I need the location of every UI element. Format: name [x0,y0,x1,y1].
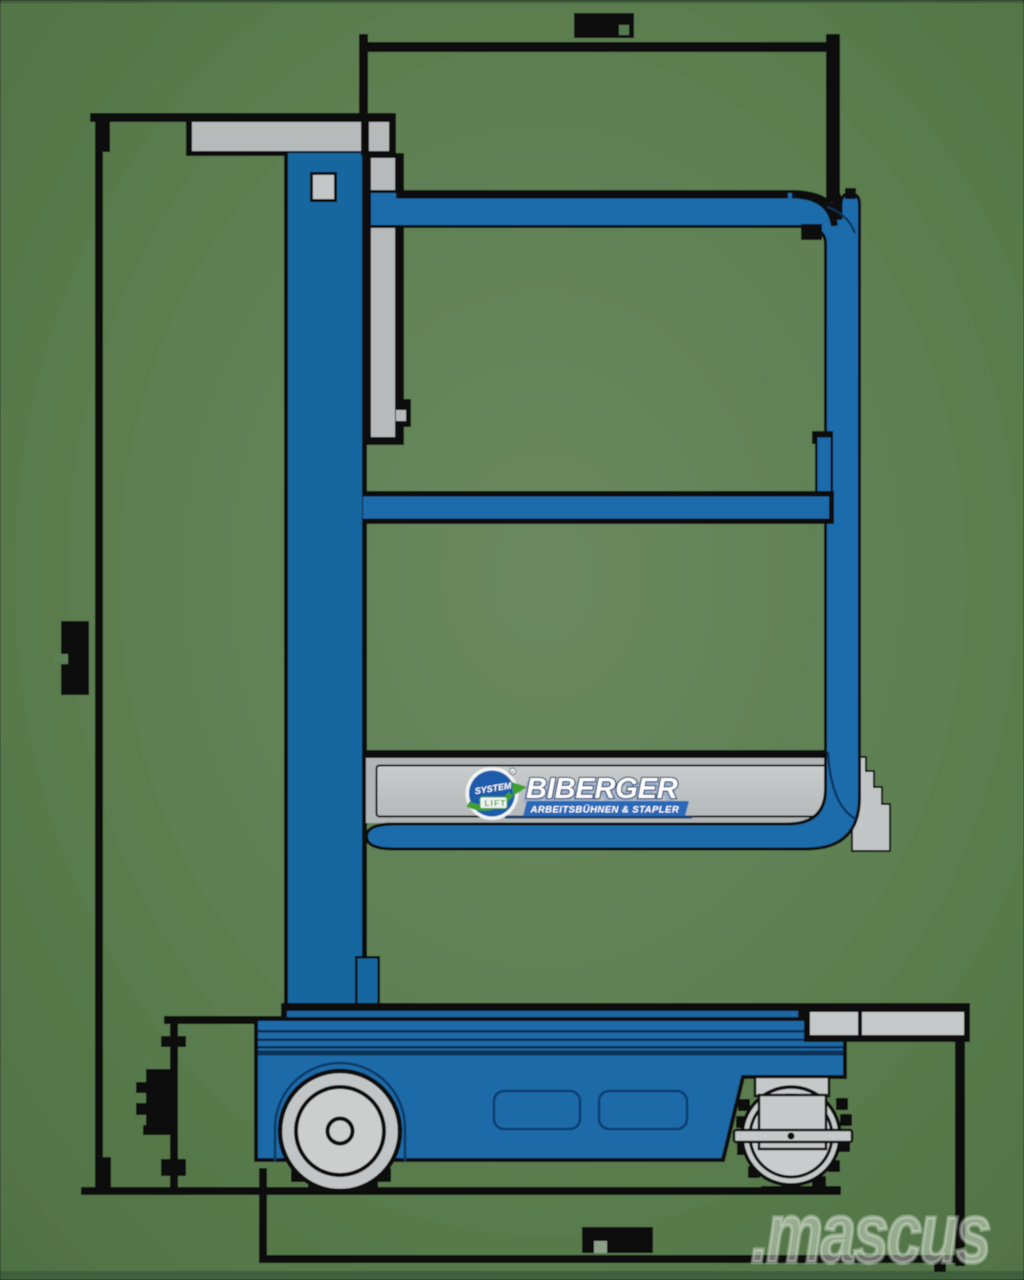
svg-text:ARBEITSBÜHNEN & STAPLER: ARBEITSBÜHNEN & STAPLER [530,804,680,815]
svg-text:R: R [510,770,514,776]
svg-text:LIFT: LIFT [485,799,507,808]
svg-text:BIBERGER: BIBERGER [526,773,678,805]
svg-text:.mascus: .mascus [751,1186,989,1280]
